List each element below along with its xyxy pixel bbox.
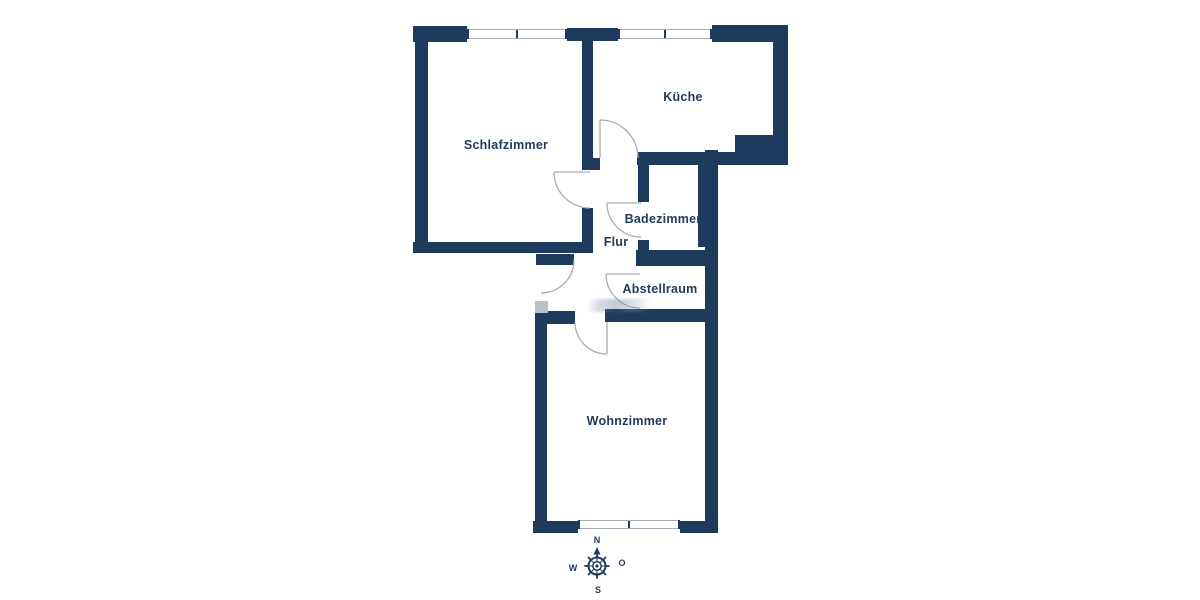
- compass-label-north: N: [594, 535, 601, 545]
- door-entry-arc: [541, 260, 574, 293]
- door-wohnzimmer-arc: [575, 322, 607, 354]
- door-schlafzimmer-arc: [554, 172, 590, 208]
- room-label-kueche: Küche: [663, 90, 702, 104]
- room-label-abstellraum: Abstellraum: [623, 282, 698, 296]
- room-label-badezimmer: Badezimmer: [625, 212, 702, 226]
- room-label-schlafzimmer: Schlafzimmer: [464, 138, 548, 152]
- compass-north-needle: [594, 547, 601, 555]
- compass-label-south: S: [595, 585, 601, 595]
- compass-label-west: W: [569, 563, 578, 573]
- room-label-wohnzimmer: Wohnzimmer: [587, 414, 668, 428]
- door-kueche-arc: [600, 120, 638, 158]
- compass-label-east: O: [618, 558, 625, 568]
- room-label-flur: Flur: [604, 235, 629, 249]
- wall-smudge-artifact: [588, 299, 650, 312]
- floor-plan: Schlafzimmer Küche Badezimmer Flur Abste…: [0, 0, 1200, 600]
